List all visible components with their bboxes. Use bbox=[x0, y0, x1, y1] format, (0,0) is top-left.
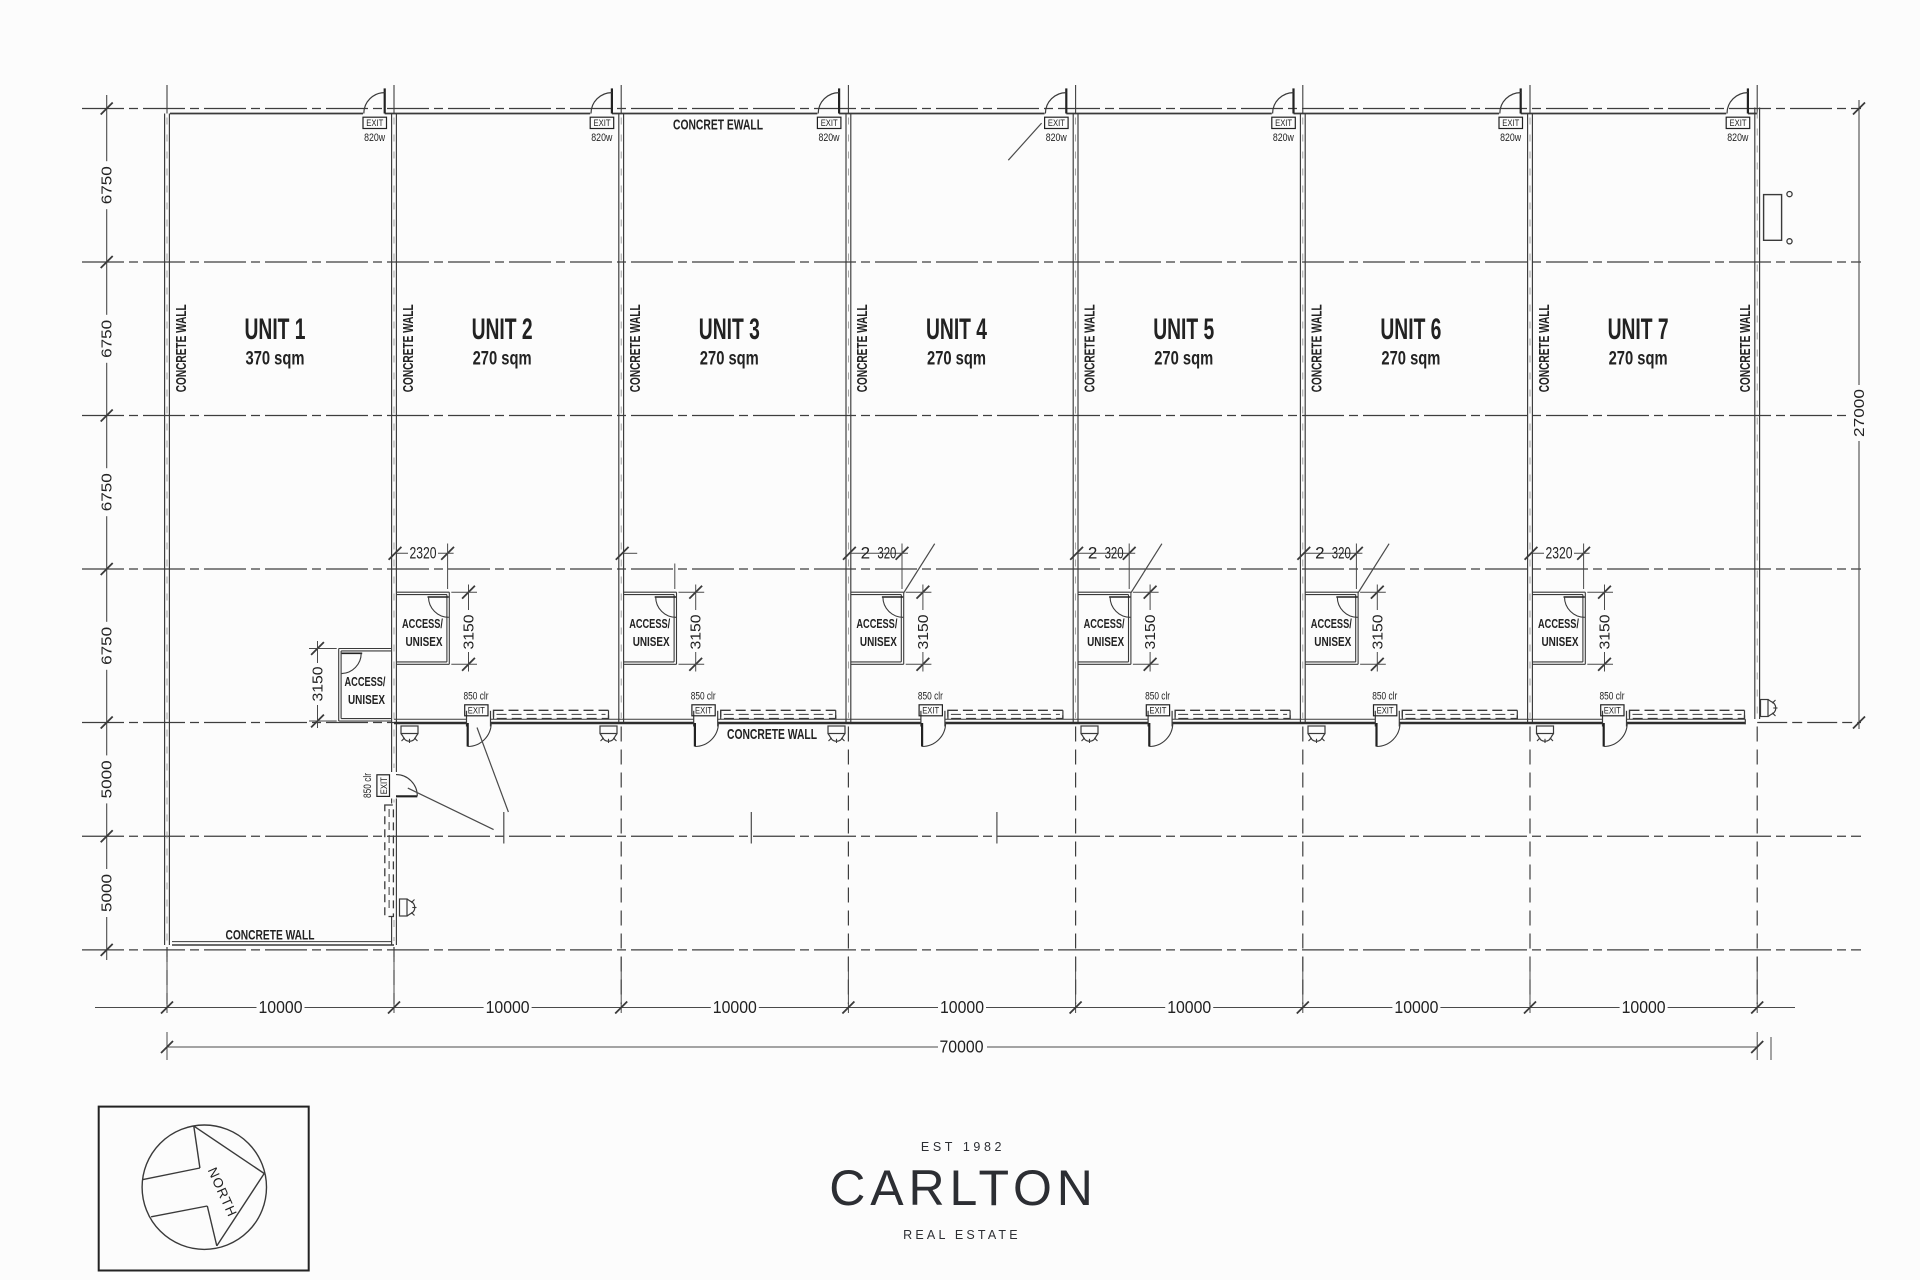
svg-text:820w: 820w bbox=[819, 132, 840, 144]
svg-text:320: 320 bbox=[1105, 543, 1124, 562]
svg-text:2: 2 bbox=[1315, 543, 1324, 562]
svg-text:320: 320 bbox=[877, 543, 896, 562]
svg-text:UNISEX: UNISEX bbox=[406, 634, 443, 649]
svg-text:6750: 6750 bbox=[99, 627, 116, 665]
svg-text:UNIT 1: UNIT 1 bbox=[245, 313, 306, 346]
svg-text:3150: 3150 bbox=[1369, 615, 1386, 650]
svg-text:3150: 3150 bbox=[1597, 615, 1614, 650]
svg-text:270 sqm: 270 sqm bbox=[700, 348, 759, 370]
svg-text:820w: 820w bbox=[364, 132, 385, 144]
svg-text:3150: 3150 bbox=[1142, 615, 1159, 650]
svg-text:CONCRETE WALL: CONCRETE WALL bbox=[1081, 304, 1098, 392]
svg-text:850 clr: 850 clr bbox=[918, 691, 943, 703]
svg-text:370 sqm: 370 sqm bbox=[246, 348, 305, 370]
svg-text:EXIT: EXIT bbox=[468, 706, 485, 717]
svg-text:EXIT: EXIT bbox=[1275, 118, 1292, 129]
svg-text:CONCRETE WALL: CONCRETE WALL bbox=[1737, 304, 1754, 392]
svg-text:3150: 3150 bbox=[310, 667, 327, 702]
svg-text:CONCRETE WALL: CONCRETE WALL bbox=[226, 928, 315, 943]
svg-text:EST 1982: EST 1982 bbox=[921, 1140, 1005, 1154]
svg-text:REAL ESTATE: REAL ESTATE bbox=[903, 1228, 1021, 1242]
svg-text:EXIT: EXIT bbox=[821, 118, 838, 129]
svg-text:EXIT: EXIT bbox=[1502, 118, 1519, 129]
svg-text:850 clr: 850 clr bbox=[691, 691, 716, 703]
svg-text:EXIT: EXIT bbox=[922, 706, 939, 717]
svg-text:10000: 10000 bbox=[1622, 997, 1666, 1017]
svg-text:850 clr: 850 clr bbox=[1372, 691, 1397, 703]
svg-text:UNIT 2: UNIT 2 bbox=[472, 313, 533, 346]
svg-text:270 sqm: 270 sqm bbox=[1154, 348, 1213, 370]
svg-text:10000: 10000 bbox=[259, 997, 303, 1017]
svg-text:CONCRETE WALL: CONCRETE WALL bbox=[727, 726, 817, 743]
svg-text:ACCESS/: ACCESS/ bbox=[1084, 616, 1125, 631]
svg-text:320: 320 bbox=[1332, 543, 1351, 562]
svg-text:UNIT 6: UNIT 6 bbox=[1380, 313, 1441, 346]
svg-text:UNISEX: UNISEX bbox=[1314, 634, 1351, 649]
svg-text:10000: 10000 bbox=[1394, 997, 1438, 1017]
svg-text:EXIT: EXIT bbox=[1377, 706, 1394, 717]
svg-text:6750: 6750 bbox=[99, 166, 116, 204]
svg-text:10000: 10000 bbox=[940, 997, 984, 1017]
svg-text:6750: 6750 bbox=[99, 320, 116, 358]
svg-text:CONCRETE WALL: CONCRETE WALL bbox=[854, 304, 871, 392]
svg-text:2: 2 bbox=[861, 543, 870, 562]
svg-text:270 sqm: 270 sqm bbox=[473, 348, 532, 370]
svg-text:270 sqm: 270 sqm bbox=[927, 348, 986, 370]
svg-text:UNISEX: UNISEX bbox=[1542, 634, 1579, 649]
svg-text:850 clr: 850 clr bbox=[1145, 691, 1170, 703]
svg-text:EXIT: EXIT bbox=[1149, 706, 1166, 717]
svg-text:3150: 3150 bbox=[461, 615, 478, 650]
svg-text:270 sqm: 270 sqm bbox=[1381, 348, 1440, 370]
svg-text:UNIT 7: UNIT 7 bbox=[1608, 313, 1669, 346]
svg-text:ACCESS/: ACCESS/ bbox=[345, 674, 386, 689]
svg-text:EXIT: EXIT bbox=[594, 118, 611, 129]
svg-text:ACCESS/: ACCESS/ bbox=[402, 616, 443, 631]
svg-text:CONCRETE WALL: CONCRETE WALL bbox=[627, 304, 644, 392]
svg-text:820w: 820w bbox=[1500, 132, 1521, 144]
svg-text:3150: 3150 bbox=[915, 615, 932, 650]
svg-text:CONCRETE WALL: CONCRETE WALL bbox=[1309, 304, 1326, 392]
svg-text:EXIT: EXIT bbox=[379, 777, 390, 794]
svg-text:820w: 820w bbox=[1273, 132, 1294, 144]
svg-text:EXIT: EXIT bbox=[695, 706, 712, 717]
svg-text:3150: 3150 bbox=[688, 615, 705, 650]
svg-text:2320: 2320 bbox=[410, 543, 437, 562]
svg-text:CARLTON: CARLTON bbox=[829, 1160, 1098, 1216]
svg-text:CONCRETE WALL: CONCRETE WALL bbox=[173, 304, 190, 392]
svg-text:UNISEX: UNISEX bbox=[860, 634, 897, 649]
svg-text:850 clr: 850 clr bbox=[362, 773, 374, 798]
svg-text:10000: 10000 bbox=[1167, 997, 1211, 1017]
svg-text:EXIT: EXIT bbox=[1048, 118, 1065, 129]
svg-text:70000: 70000 bbox=[940, 1037, 984, 1057]
svg-text:CONCRETE WALL: CONCRETE WALL bbox=[400, 304, 417, 392]
svg-text:820w: 820w bbox=[591, 132, 612, 144]
svg-text:10000: 10000 bbox=[713, 997, 757, 1017]
svg-text:850 clr: 850 clr bbox=[464, 691, 489, 703]
svg-text:UNISEX: UNISEX bbox=[348, 692, 385, 707]
svg-text:2: 2 bbox=[1088, 543, 1097, 562]
svg-text:UNISEX: UNISEX bbox=[1087, 634, 1124, 649]
svg-text:5000: 5000 bbox=[99, 760, 116, 798]
svg-text:UNIT 4: UNIT 4 bbox=[926, 313, 987, 346]
svg-text:2320: 2320 bbox=[1546, 543, 1573, 562]
svg-text:EXIT: EXIT bbox=[366, 118, 383, 129]
svg-text:ACCESS/: ACCESS/ bbox=[629, 616, 670, 631]
svg-text:UNIT 3: UNIT 3 bbox=[699, 313, 760, 346]
svg-text:EXIT: EXIT bbox=[1730, 118, 1747, 129]
svg-text:CONCRETE WALL: CONCRETE WALL bbox=[1536, 304, 1553, 392]
svg-text:10000: 10000 bbox=[486, 997, 530, 1017]
svg-text:27000: 27000 bbox=[1851, 389, 1868, 437]
svg-text:850 clr: 850 clr bbox=[1600, 691, 1625, 703]
svg-text:UNISEX: UNISEX bbox=[633, 634, 670, 649]
svg-text:ACCESS/: ACCESS/ bbox=[856, 616, 897, 631]
svg-text:5000: 5000 bbox=[99, 874, 116, 912]
svg-text:ACCESS/: ACCESS/ bbox=[1311, 616, 1352, 631]
svg-text:820w: 820w bbox=[1046, 132, 1067, 144]
svg-text:EXIT: EXIT bbox=[1604, 706, 1621, 717]
svg-text:270 sqm: 270 sqm bbox=[1609, 348, 1668, 370]
svg-text:820w: 820w bbox=[1727, 132, 1748, 144]
svg-text:6750: 6750 bbox=[99, 473, 116, 511]
svg-text:UNIT 5: UNIT 5 bbox=[1153, 313, 1214, 346]
svg-text:ACCESS/: ACCESS/ bbox=[1538, 616, 1579, 631]
svg-text:CONCRET EWALL: CONCRET EWALL bbox=[673, 116, 763, 133]
